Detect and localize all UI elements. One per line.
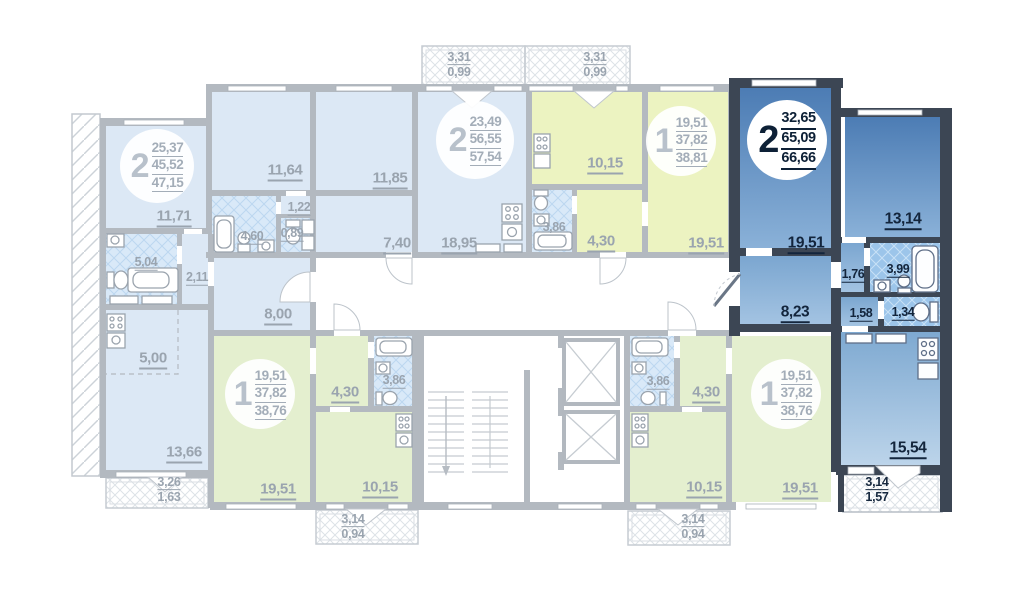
elevator-icon — [564, 340, 618, 462]
hatched-wall — [72, 114, 100, 476]
room-area-label: 1,22 — [288, 201, 311, 214]
apartment-top-right-1-room[interactable] — [532, 84, 734, 256]
balcony-label: 3,310,99 — [583, 50, 606, 80]
balcony-label: 3,310,99 — [447, 50, 470, 80]
room-area-label: 11,64 — [268, 163, 303, 178]
room-area-label: 8,00 — [264, 307, 292, 322]
apartment-middle-2-room[interactable] — [316, 84, 528, 256]
room-area-label: 4,60 — [241, 230, 264, 243]
apartment-bottom-right-1-room[interactable] — [630, 336, 830, 506]
balcony-label: 3,140,94 — [681, 512, 704, 542]
room-area-label: 0,89 — [281, 227, 304, 240]
balcony-label: 3,261,63 — [157, 475, 180, 505]
bathtub-icon — [214, 216, 234, 252]
apartment-bottom-left-1-room[interactable] — [214, 336, 414, 506]
entrance-doors — [280, 252, 740, 336]
stairs-icon — [428, 390, 508, 476]
apartment-left-2-room[interactable] — [100, 118, 212, 478]
floor-plan: 2 25,3745,5247,15 2 23,4956,5557,54 1 19… — [0, 0, 1024, 593]
balcony-label: 3,140,94 — [341, 512, 364, 542]
